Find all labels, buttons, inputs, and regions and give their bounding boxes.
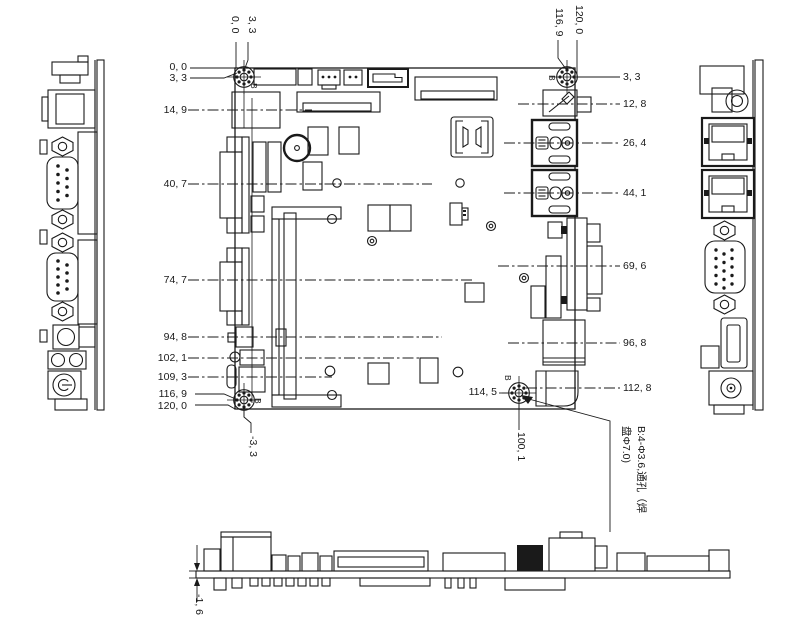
hole-marker-b-bottom-left: B: [253, 398, 262, 404]
hole-marker-b-bottom-right: B: [503, 375, 512, 381]
dim-label-left-3: 40, 7: [147, 179, 187, 190]
dim-label-top-right-0: 116, 9: [553, 8, 564, 36]
antenna-connector: [712, 88, 748, 112]
dim-label-right-5: 96, 8: [623, 338, 646, 349]
db9-connector-2: [47, 233, 97, 324]
dim-label-thickness: -1, 6: [193, 594, 204, 615]
bottom-view: [189, 532, 730, 602]
hole-note-line1: B:4-Φ3.6,通孔（焊: [634, 426, 649, 513]
db9-connector-1: [47, 132, 97, 234]
dim-label-left-8: 116, 9: [147, 389, 187, 400]
dc-barrel-jack: [709, 371, 753, 405]
dim-label-right-2: 26, 4: [623, 138, 646, 149]
side-ribbed-block: [42, 90, 95, 128]
dim-label-right-6: 112, 8: [623, 383, 651, 394]
pcb-dimension-drawing: 0, 0 3, 3 14, 9 40, 7 74, 7 94, 8 102, 1…: [0, 0, 805, 624]
right-side-view: [700, 60, 763, 414]
dim-label-left-6: 102, 1: [147, 353, 187, 364]
left-side-view: [40, 56, 104, 410]
rj45-port-1: [702, 118, 754, 166]
hdmi-connector: [721, 318, 747, 368]
rj45-port-2: [702, 170, 754, 218]
dim-label-top-right-1: 120, 0: [573, 5, 584, 34]
hole-marker-b-top-left: B: [249, 83, 258, 89]
dim-label-bottom-y: 114, 5: [462, 387, 497, 398]
board-cross-section: [196, 571, 730, 578]
hole-note: B:4-Φ3.6,通孔（焊 盘Φ7.0): [619, 426, 648, 513]
dim-label-right-4: 69, 6: [623, 261, 646, 272]
dim-label-right-0: 3, 3: [623, 72, 641, 83]
dim-label-right-3: 44, 1: [623, 188, 646, 199]
drawing-canvas: [0, 0, 805, 624]
hole-marker-b-top-right: B: [547, 75, 556, 81]
dual-audio-jacks: [48, 351, 86, 369]
dim-label-left-2: 14, 9: [147, 105, 187, 116]
dim-label-left-5: 94, 8: [147, 332, 187, 343]
power-din-jack: [48, 371, 81, 399]
vga-side: [561, 218, 602, 311]
round-jack: [53, 325, 95, 349]
dim-label-left-9: 120, 0: [147, 401, 187, 412]
dim-label-left-7: 109, 3: [147, 372, 187, 383]
dim-label-bottom-left: -3, 3: [247, 436, 258, 457]
dim-label-top-left-1: 3, 3: [246, 16, 257, 34]
dim-label-bottom-x: 100, 1: [515, 432, 526, 461]
top-view: [188, 40, 620, 532]
buzzer: [284, 135, 310, 161]
dim-label-left-4: 74, 7: [147, 275, 187, 286]
dim-label-top-left-0: 0, 0: [229, 16, 240, 34]
dim-label-left-1: 3, 3: [147, 73, 187, 84]
hole-note-line2: 盘Φ7.0): [619, 426, 634, 513]
dim-label-right-1: 12, 8: [623, 99, 646, 110]
vga-connector: [705, 221, 745, 314]
